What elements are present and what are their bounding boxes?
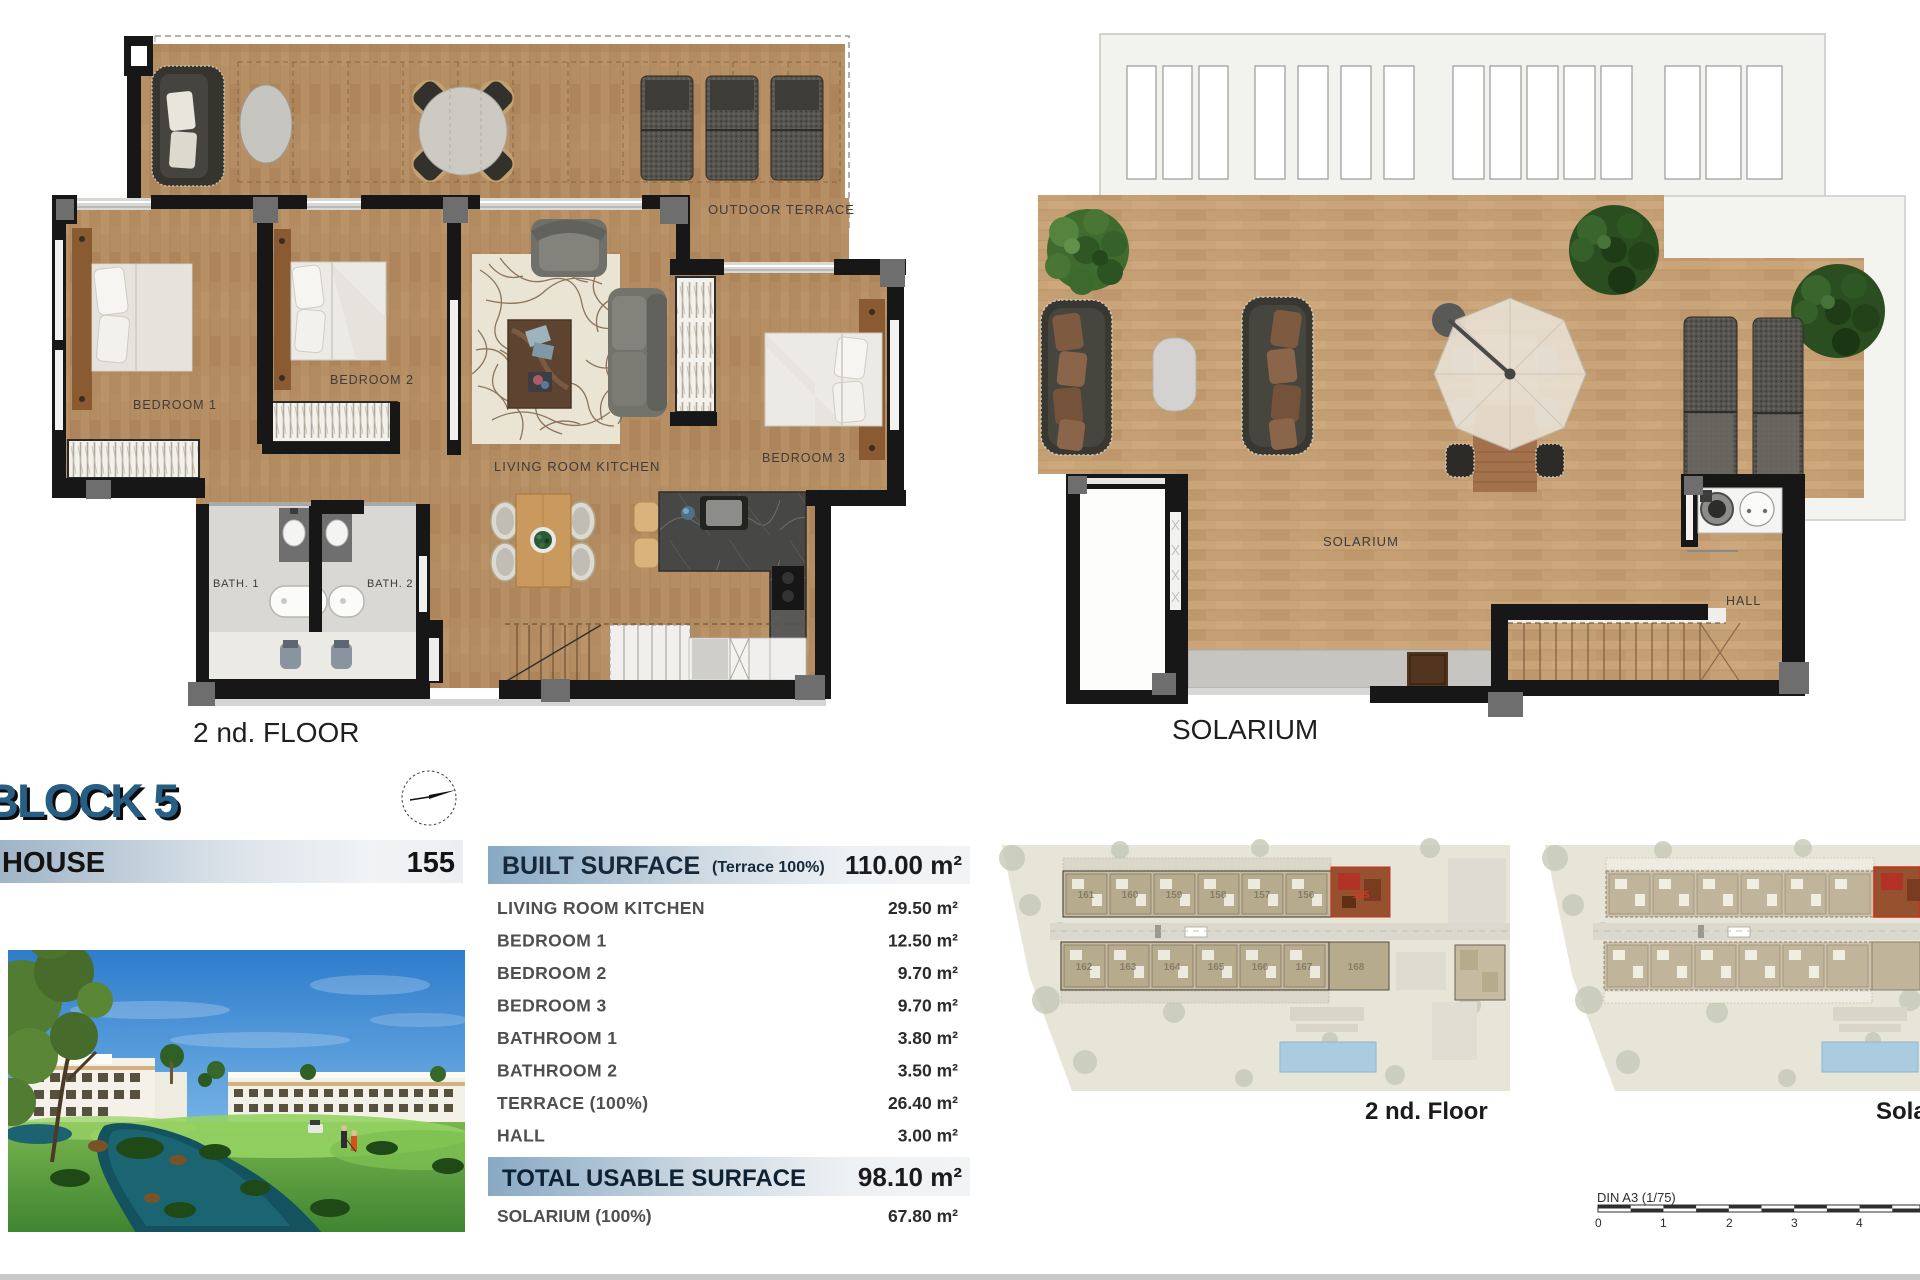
svg-text:155: 155 xyxy=(1353,890,1370,901)
svg-text:HALL: HALL xyxy=(497,1126,545,1146)
svg-text:HOUSE: HOUSE xyxy=(2,847,105,879)
svg-text:BLOCK 5: BLOCK 5 xyxy=(0,774,178,827)
svg-text:162: 162 xyxy=(1076,962,1093,973)
svg-text:3.00 m²: 3.00 m² xyxy=(898,1126,958,1146)
svg-text:26.40 m²: 26.40 m² xyxy=(888,1093,958,1113)
svg-text:168: 168 xyxy=(1348,962,1365,973)
svg-text:155: 155 xyxy=(407,847,455,879)
svg-text:SOLARIUM: SOLARIUM xyxy=(1172,714,1318,745)
svg-text:HALL: HALL xyxy=(1726,594,1761,608)
svg-text:67.80 m²: 67.80 m² xyxy=(888,1206,958,1226)
svg-text:2 nd. Floor: 2 nd. Floor xyxy=(1365,1098,1488,1125)
svg-text:163: 163 xyxy=(1120,962,1137,973)
svg-text:0: 0 xyxy=(1595,1216,1602,1230)
svg-text:BATHROOM 2: BATHROOM 2 xyxy=(497,1061,617,1081)
svg-text:156: 156 xyxy=(1298,890,1315,901)
svg-text:BEDROOM 2: BEDROOM 2 xyxy=(497,963,607,983)
svg-text:164: 164 xyxy=(1164,962,1181,973)
svg-text:161: 161 xyxy=(1078,890,1095,901)
svg-text:BEDROOM 1: BEDROOM 1 xyxy=(497,931,607,951)
svg-text:3.50 m²: 3.50 m² xyxy=(898,1061,958,1081)
svg-text:BATH. 2: BATH. 2 xyxy=(367,578,413,590)
svg-text:158: 158 xyxy=(1210,890,1227,901)
svg-text:LIVING ROOM KITCHEN: LIVING ROOM KITCHEN xyxy=(494,459,660,474)
svg-text:3: 3 xyxy=(1791,1216,1798,1230)
svg-text:29.50 m²: 29.50 m² xyxy=(888,898,958,918)
svg-text:9.70 m²: 9.70 m² xyxy=(898,996,958,1016)
svg-text:9.70 m²: 9.70 m² xyxy=(898,963,958,983)
svg-text:157: 157 xyxy=(1254,890,1271,901)
svg-text:110.00 m²: 110.00 m² xyxy=(845,850,962,880)
svg-text:BEDROOM 1: BEDROOM 1 xyxy=(133,398,217,412)
svg-text:12.50 m²: 12.50 m² xyxy=(888,931,958,951)
svg-text:BATH. 1: BATH. 1 xyxy=(213,578,259,590)
svg-text:98.10 m²: 98.10 m² xyxy=(858,1162,962,1192)
svg-text:159: 159 xyxy=(1166,890,1183,901)
svg-text:SOLARIUM (100%): SOLARIUM (100%) xyxy=(497,1206,652,1226)
svg-text:2: 2 xyxy=(1726,1216,1733,1230)
svg-text:TERRACE (100%): TERRACE (100%) xyxy=(497,1093,648,1113)
svg-text:BUILT SURFACE: BUILT SURFACE xyxy=(502,852,700,880)
svg-text:BEDROOM 3: BEDROOM 3 xyxy=(762,451,846,465)
svg-text:166: 166 xyxy=(1252,962,1269,973)
svg-text:1: 1 xyxy=(1660,1216,1667,1230)
svg-text:LIVING ROOM KITCHEN: LIVING ROOM KITCHEN xyxy=(497,898,705,918)
svg-text:DIN A3 (1/75): DIN A3 (1/75) xyxy=(1597,1190,1676,1205)
svg-text:160: 160 xyxy=(1122,890,1139,901)
svg-text:BEDROOM 2: BEDROOM 2 xyxy=(330,373,414,387)
svg-text:4: 4 xyxy=(1856,1216,1863,1230)
svg-text:167: 167 xyxy=(1296,962,1313,973)
svg-text:BATHROOM 1: BATHROOM 1 xyxy=(497,1028,617,1048)
svg-text:SOLARIUM: SOLARIUM xyxy=(1323,534,1399,549)
svg-text:2 nd. FLOOR: 2 nd. FLOOR xyxy=(193,717,360,748)
svg-text:BEDROOM 3: BEDROOM 3 xyxy=(497,996,607,1016)
svg-text:165: 165 xyxy=(1208,962,1225,973)
svg-text:OUTDOOR TERRACE: OUTDOOR TERRACE xyxy=(708,202,855,217)
svg-text:TOTAL USABLE SURFACE: TOTAL USABLE SURFACE xyxy=(502,1165,806,1192)
svg-text:3.80 m²: 3.80 m² xyxy=(898,1028,958,1048)
svg-text:(Terrace 100%): (Terrace 100%) xyxy=(712,859,825,876)
svg-text:Solariu: Solariu xyxy=(1876,1098,1920,1125)
